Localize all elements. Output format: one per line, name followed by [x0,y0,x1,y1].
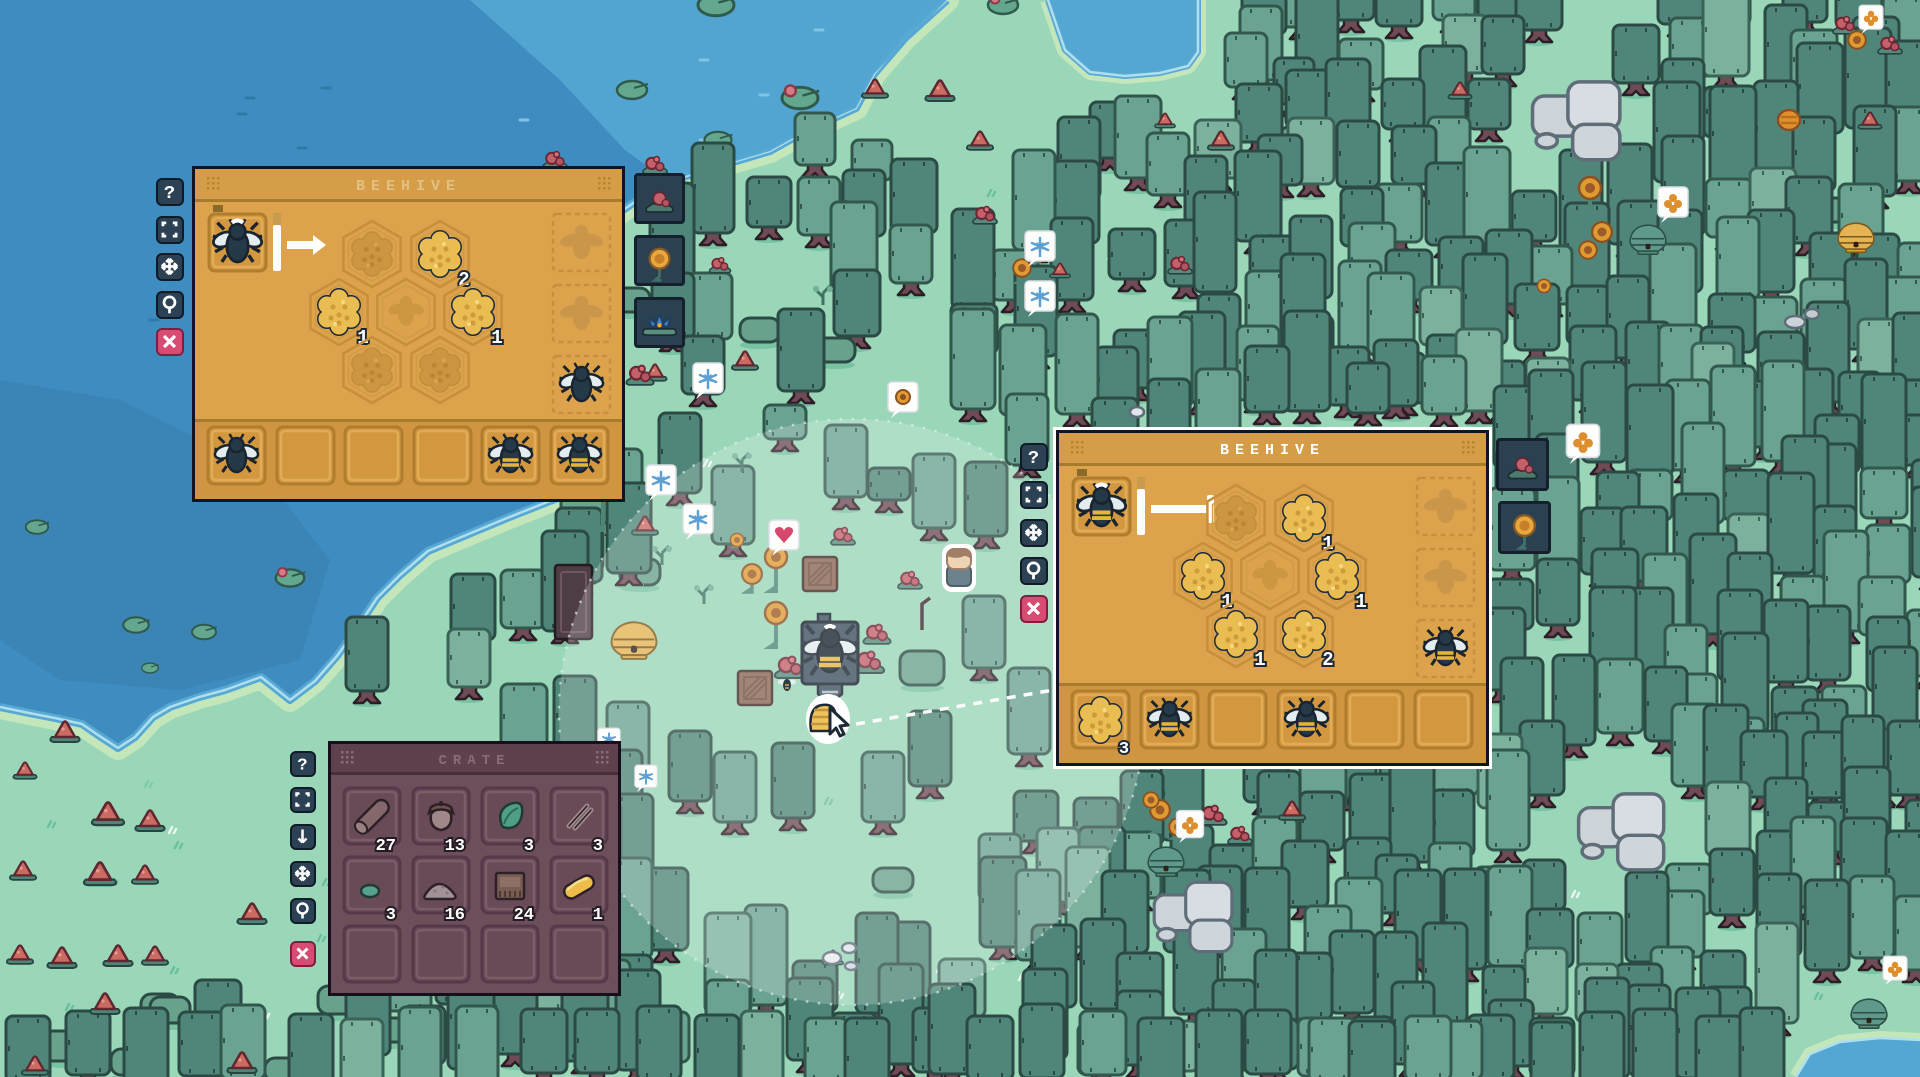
svg-text:BEEHIVE: BEEHIVE [1220,442,1325,459]
svg-text:1: 1 [1355,591,1366,613]
svg-text:27: 27 [376,837,396,856]
svg-text:1: 1 [491,327,502,349]
svg-text:1: 1 [1254,649,1265,671]
svg-text:2: 2 [1322,649,1333,671]
svg-text:3: 3 [1119,740,1129,759]
svg-text:1: 1 [593,906,603,925]
svg-text:24: 24 [514,906,534,925]
svg-text:13: 13 [445,837,465,856]
svg-text:?: ? [1028,448,1039,468]
svg-text:?: ? [164,183,175,203]
svg-text:BEEHIVE: BEEHIVE [356,178,461,195]
svg-text:3: 3 [386,906,396,925]
svg-text:?: ? [297,757,307,775]
svg-text:CRATE: CRATE [438,753,510,769]
svg-text:3: 3 [524,837,534,856]
svg-text:16: 16 [445,906,465,925]
svg-text:3: 3 [593,837,603,856]
